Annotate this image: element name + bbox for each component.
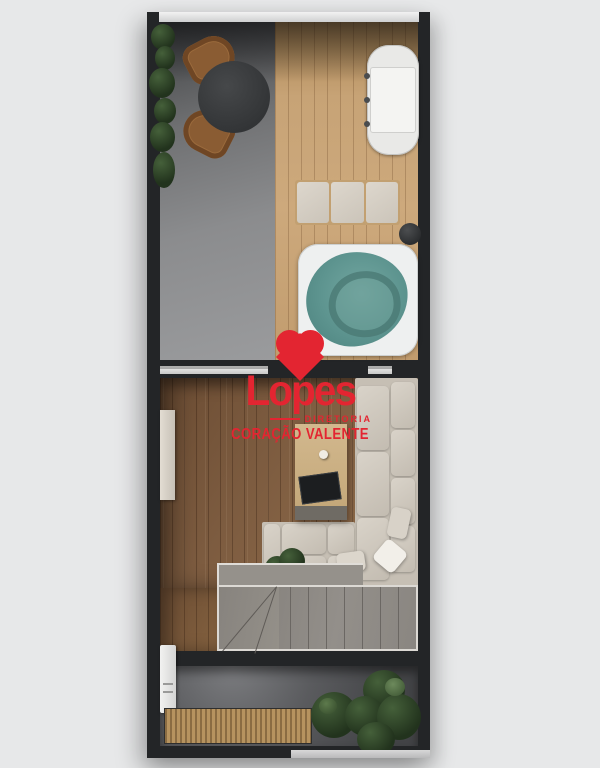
sofa-seat-cushion <box>357 452 389 516</box>
slatted-bench <box>164 708 312 744</box>
staircase <box>217 585 418 651</box>
planter-vines <box>151 24 183 192</box>
wall-shelf <box>160 410 175 500</box>
leaf-icon <box>150 122 175 152</box>
decor-tray <box>298 471 342 504</box>
round-dining-table <box>198 61 270 133</box>
subtitle-line <box>270 418 300 420</box>
daybed-cushion <box>297 182 329 223</box>
subtitle-row: DIRETORIA <box>270 414 372 424</box>
subtitle-text: DIRETORIA <box>305 414 372 424</box>
sofa-back-cushion <box>391 430 415 476</box>
large-potted-plant <box>345 670 421 756</box>
sofa-back-cushion <box>391 382 415 428</box>
leaf-icon <box>149 68 175 98</box>
fixture-handle <box>163 683 173 685</box>
leaf-icon <box>154 98 176 124</box>
grill-lid <box>370 67 416 133</box>
daybed-cushion <box>366 182 398 223</box>
barbecue-grill <box>367 45 419 155</box>
leaf-icon <box>319 698 337 714</box>
daybed-lounger <box>295 180 400 225</box>
leaf-icon <box>385 678 405 696</box>
bottom-window-sill <box>291 750 430 758</box>
living-room-floor-extension <box>160 588 217 651</box>
wall-fixture <box>160 645 176 713</box>
leaf-icon <box>155 46 175 70</box>
coffee-table-base <box>295 506 347 520</box>
watermark: Lopes DIRETORIA CORAÇÃO VALENTE <box>222 330 378 444</box>
daybed-cushion <box>331 182 363 223</box>
brand-logo-text: Lopes <box>245 370 355 413</box>
fixture-handle <box>163 691 173 693</box>
grill-knob <box>364 97 370 103</box>
stair-landing <box>217 563 363 587</box>
mug <box>319 450 328 459</box>
side-table <box>399 223 421 245</box>
grill-knob <box>364 121 370 127</box>
sofa-seat-cushion <box>328 524 354 554</box>
tagline-text: CORAÇÃO VALENTE <box>231 426 369 444</box>
leaf-icon <box>153 152 175 188</box>
grill-knob <box>364 73 370 79</box>
top-window-sill <box>159 12 419 22</box>
